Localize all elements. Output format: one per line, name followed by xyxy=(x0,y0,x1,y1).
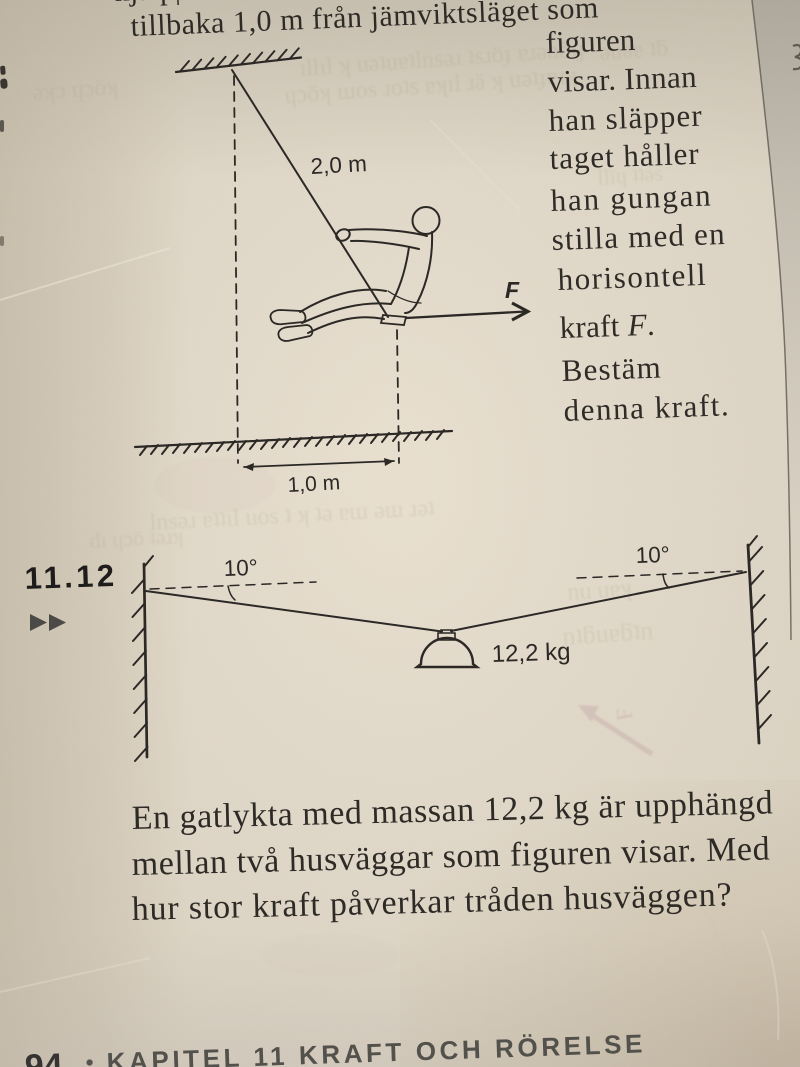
svg-text:11.12: 11.12 xyxy=(24,558,118,596)
svg-text:visar. Innan: visar. Innan xyxy=(547,59,698,99)
svg-text:stilla med en: stilla med en xyxy=(551,216,726,257)
svg-text:han släpper: han släpper xyxy=(548,98,703,138)
svg-text:kraft F.: kraft F. xyxy=(559,307,655,345)
svg-text:2,0 m: 2,0 m xyxy=(310,151,368,179)
svg-text:F: F xyxy=(505,277,520,303)
svg-text:horisontell: horisontell xyxy=(557,257,706,297)
svg-text:10°: 10° xyxy=(223,555,258,581)
svg-text:94: 94 xyxy=(24,1047,63,1067)
svg-text:•: • xyxy=(85,1050,94,1067)
svg-text:taget håller: taget håller xyxy=(549,136,700,176)
svg-text:han gungan: han gungan xyxy=(550,177,712,218)
svg-text:denna kraft.: denna kraft. xyxy=(563,387,729,428)
svg-text:figuren: figuren xyxy=(545,22,636,60)
svg-text:12,2 kg: 12,2 kg xyxy=(491,638,571,668)
svg-text:1,0 m: 1,0 m xyxy=(287,471,341,497)
svg-text:10°: 10° xyxy=(635,542,670,568)
